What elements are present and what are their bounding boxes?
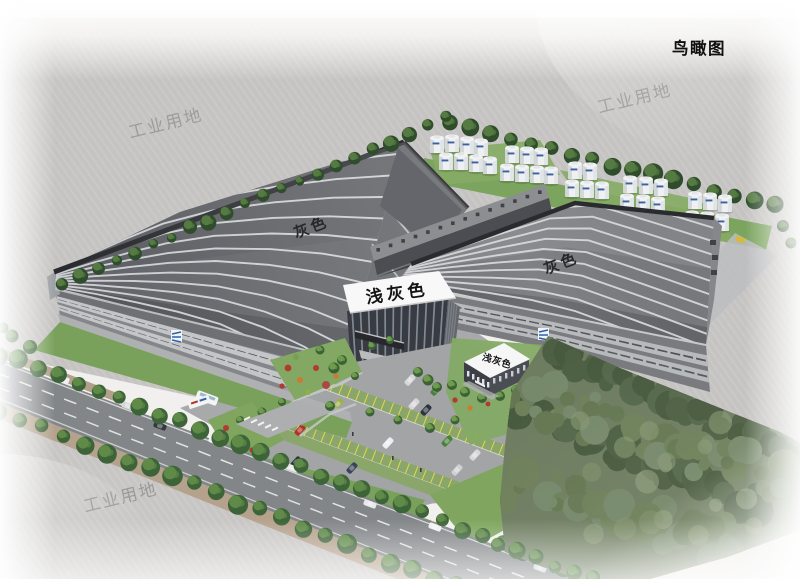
svg-text:鸟瞰图: 鸟瞰图 (672, 38, 726, 58)
